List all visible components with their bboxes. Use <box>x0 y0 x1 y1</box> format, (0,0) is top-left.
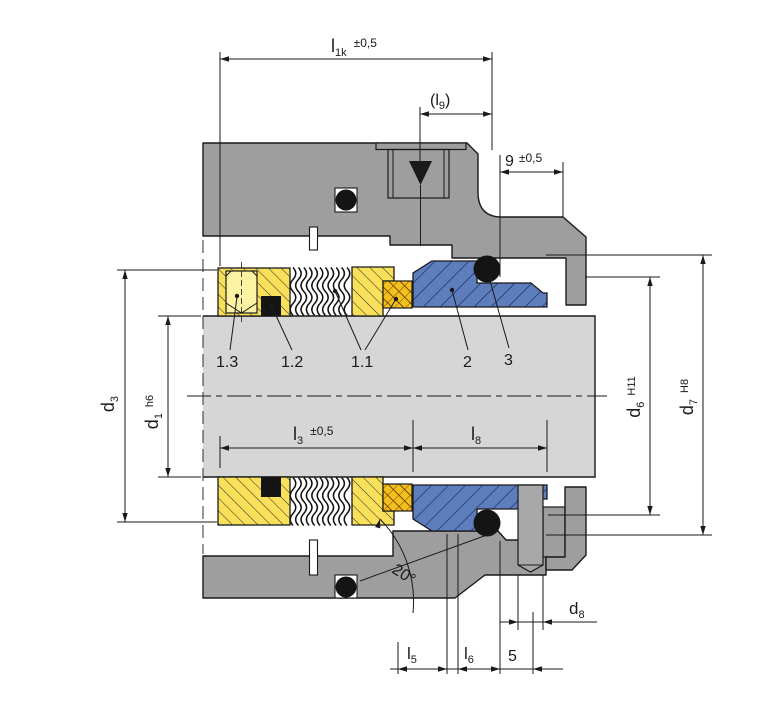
part-label-1-3: 1.3 <box>216 354 238 371</box>
packing-ring-top <box>383 281 412 308</box>
oring-seat-bottom <box>474 510 501 537</box>
oring-top-housing <box>336 190 357 211</box>
oring-groove-top <box>335 188 357 212</box>
part-label-1-1: 1.1 <box>351 354 373 371</box>
oring-seat-top <box>474 256 501 283</box>
part-label-3: 3 <box>504 352 513 369</box>
housing-slot-top <box>310 227 318 250</box>
dim-5-label: 5 <box>508 648 517 665</box>
part-label-2: 2 <box>463 354 472 371</box>
part-label-1-2: 1.2 <box>281 354 303 371</box>
flush-port-plate <box>376 143 466 150</box>
housing-slot-bottom <box>310 540 318 575</box>
oring-groove-bottom <box>335 575 357 598</box>
shaft <box>203 316 595 477</box>
drive-pin <box>518 485 543 572</box>
technical-drawing-page: l1k±0,5 (l9) 9±0,5 d3 <box>0 0 768 716</box>
set-screw <box>226 262 257 322</box>
packing-ring-bottom <box>383 484 412 511</box>
oring-shaft-bottom <box>261 477 281 497</box>
oring-bottom-housing <box>336 577 357 598</box>
seal-cross-section-drawing: l1k±0,5 (l9) 9±0,5 d3 <box>0 0 768 716</box>
